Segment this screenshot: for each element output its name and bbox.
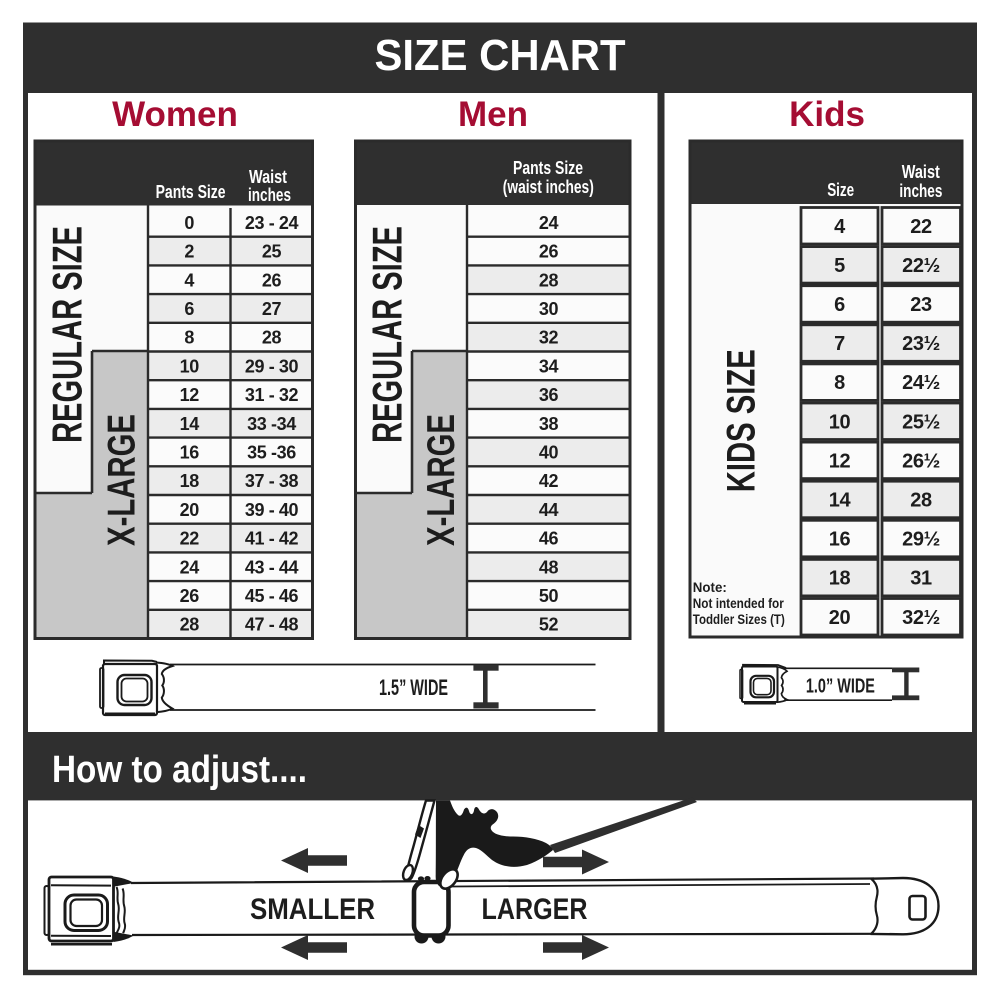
svg-text:48: 48: [539, 557, 559, 577]
svg-text:SMALLER: SMALLER: [250, 893, 375, 926]
svg-text:X-LARGE: X-LARGE: [101, 414, 144, 546]
svg-text:Size: Size: [827, 180, 854, 200]
svg-text:41 - 42: 41 - 42: [245, 529, 299, 549]
svg-text:52: 52: [539, 615, 559, 635]
svg-text:31: 31: [910, 568, 932, 590]
svg-text:Men: Men: [458, 95, 528, 134]
svg-text:46: 46: [539, 529, 559, 549]
svg-text:37 - 38: 37 - 38: [245, 471, 299, 491]
svg-text:Pants Size: Pants Size: [156, 182, 226, 202]
svg-text:38: 38: [539, 414, 559, 434]
svg-text:14: 14: [829, 489, 852, 511]
svg-text:1.0” WIDE: 1.0” WIDE: [806, 676, 875, 698]
svg-text:36: 36: [539, 385, 559, 405]
svg-text:10: 10: [829, 411, 851, 433]
svg-text:28: 28: [910, 489, 932, 511]
svg-text:0: 0: [184, 213, 194, 233]
svg-text:6: 6: [834, 294, 845, 316]
svg-text:inches: inches: [899, 181, 942, 201]
svg-text:33 -34: 33 -34: [247, 414, 296, 434]
svg-text:6: 6: [184, 299, 194, 319]
svg-text:How to adjust....: How to adjust....: [52, 749, 307, 791]
svg-text:Kids: Kids: [789, 95, 865, 134]
svg-text:24: 24: [539, 213, 559, 233]
svg-text:KIDS SIZE: KIDS SIZE: [720, 349, 764, 492]
svg-text:44: 44: [539, 500, 559, 520]
svg-text:10: 10: [180, 356, 200, 376]
svg-text:SIZE CHART: SIZE CHART: [375, 31, 626, 80]
svg-text:8: 8: [184, 328, 194, 348]
svg-text:24: 24: [180, 557, 200, 577]
svg-text:32½: 32½: [902, 607, 940, 629]
svg-text:24½: 24½: [902, 372, 940, 394]
svg-text:45 - 46: 45 - 46: [245, 586, 299, 606]
svg-text:23½: 23½: [902, 333, 940, 355]
svg-text:42: 42: [539, 471, 559, 491]
svg-text:REGULAR SIZE: REGULAR SIZE: [44, 226, 91, 443]
svg-text:50: 50: [539, 586, 559, 606]
svg-text:27: 27: [262, 299, 282, 319]
svg-text:26½: 26½: [902, 450, 940, 472]
svg-text:8: 8: [834, 372, 845, 394]
svg-text:Not intended for: Not intended for: [693, 596, 785, 611]
svg-text:25: 25: [262, 242, 282, 262]
svg-text:18: 18: [829, 568, 851, 590]
svg-text:16: 16: [829, 529, 851, 551]
svg-text:25½: 25½: [902, 411, 940, 433]
svg-text:Note:: Note:: [693, 580, 727, 595]
svg-text:32: 32: [539, 328, 559, 348]
svg-text:29½: 29½: [902, 529, 940, 551]
svg-text:Pants Size: Pants Size: [513, 158, 583, 178]
svg-text:7: 7: [834, 333, 845, 355]
svg-text:47 - 48: 47 - 48: [245, 615, 299, 635]
svg-text:inches: inches: [248, 185, 291, 205]
svg-text:23: 23: [910, 294, 932, 316]
svg-text:12: 12: [829, 450, 851, 472]
svg-text:20: 20: [829, 607, 851, 629]
svg-text:22: 22: [180, 529, 200, 549]
svg-text:34: 34: [539, 356, 559, 376]
svg-text:22½: 22½: [902, 255, 940, 277]
svg-text:20: 20: [180, 500, 200, 520]
svg-text:28: 28: [180, 615, 200, 635]
svg-text:4: 4: [184, 270, 194, 290]
svg-text:Women: Women: [112, 95, 238, 134]
svg-text:28: 28: [262, 328, 282, 348]
svg-text:26: 26: [539, 242, 559, 262]
svg-text:16: 16: [180, 442, 200, 462]
svg-text:14: 14: [180, 414, 200, 434]
svg-text:18: 18: [180, 471, 200, 491]
svg-text:(waist inches): (waist inches): [503, 177, 594, 197]
svg-text:30: 30: [539, 299, 559, 319]
svg-text:4: 4: [834, 216, 846, 238]
svg-text:31 - 32: 31 - 32: [245, 385, 299, 405]
svg-text:29 - 30: 29 - 30: [245, 356, 299, 376]
svg-text:39 - 40: 39 - 40: [245, 500, 299, 520]
svg-text:Toddler Sizes (T): Toddler Sizes (T): [693, 612, 785, 627]
svg-text:23 - 24: 23 - 24: [245, 213, 299, 233]
svg-text:2: 2: [184, 242, 194, 262]
svg-text:LARGER: LARGER: [482, 893, 588, 926]
svg-text:35 -36: 35 -36: [247, 442, 296, 462]
svg-text:5: 5: [834, 255, 845, 277]
svg-text:1.5” WIDE: 1.5” WIDE: [379, 675, 448, 700]
svg-text:X-LARGE: X-LARGE: [420, 414, 463, 546]
svg-text:22: 22: [910, 216, 932, 238]
svg-text:43 - 44: 43 - 44: [245, 557, 299, 577]
svg-text:12: 12: [180, 385, 200, 405]
svg-text:REGULAR SIZE: REGULAR SIZE: [364, 226, 411, 443]
svg-text:Waist: Waist: [249, 167, 287, 187]
svg-text:40: 40: [539, 442, 559, 462]
svg-text:26: 26: [180, 586, 200, 606]
svg-text:Waist: Waist: [902, 162, 940, 182]
svg-text:28: 28: [539, 270, 559, 290]
svg-text:26: 26: [262, 270, 282, 290]
